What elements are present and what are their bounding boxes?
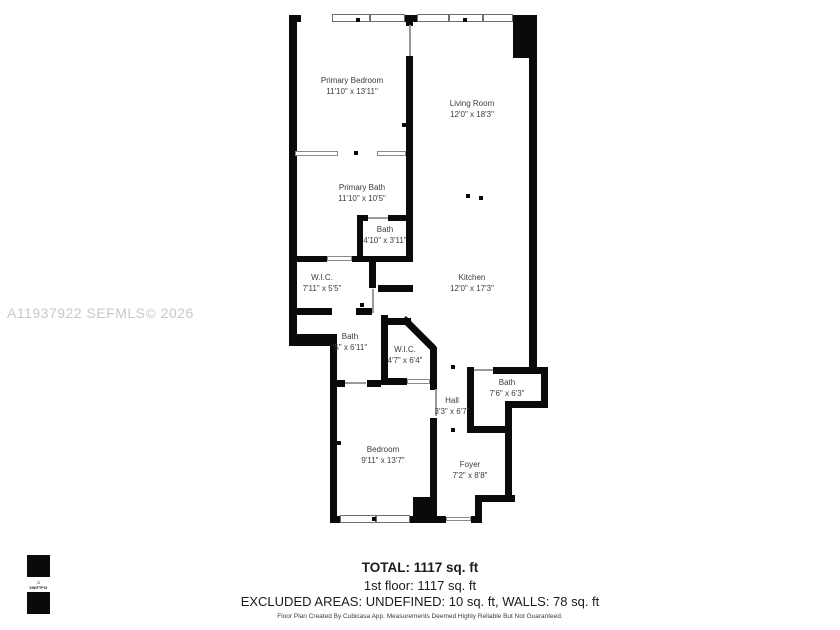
window bbox=[332, 14, 405, 22]
entry-door bbox=[446, 517, 471, 521]
summary-first-floor: 1st floor: 1117 sq. ft bbox=[0, 578, 840, 593]
brand-name: SWIFTPIX bbox=[29, 586, 47, 590]
sliding-door bbox=[377, 151, 406, 156]
wall bbox=[529, 15, 537, 374]
room-dims: 11'10" x 13'11" bbox=[292, 86, 412, 97]
wall-tick bbox=[479, 196, 483, 200]
window-mullion bbox=[482, 15, 484, 21]
room-dims: 4'10" x 3'11" bbox=[335, 235, 435, 246]
summary-excluded-areas: EXCLUDED AREAS: UNDEFINED: 10 sq. ft, WA… bbox=[0, 594, 840, 609]
summary-disclaimer: Floor Plan Created By Cubicasa App. Meas… bbox=[0, 613, 840, 620]
wall bbox=[356, 308, 372, 315]
brand-logo-band: ⌂ SWIFTPIX bbox=[27, 577, 50, 592]
sliding-door bbox=[327, 256, 352, 261]
room-label-hall: Hall 3'3" x 6'7" bbox=[407, 395, 497, 417]
room-dims: 7'2" x 8'8" bbox=[420, 470, 520, 481]
summary-total: TOTAL: 1117 sq. ft bbox=[0, 560, 840, 575]
room-dims: 4'7" x 6'4" bbox=[360, 355, 450, 366]
room-name: Kitchen bbox=[412, 272, 532, 283]
room-name: Bath bbox=[335, 224, 435, 235]
wall-tick bbox=[356, 18, 360, 22]
room-label-kitchen: Kitchen 12'0" x 17'3" bbox=[412, 272, 532, 294]
wall bbox=[330, 334, 337, 523]
room-name: W.I.C. bbox=[360, 344, 450, 355]
room-dims: 3'3" x 6'7" bbox=[407, 406, 497, 417]
room-dims: 12'0" x 17'3" bbox=[412, 283, 532, 294]
room-label-bath-small: Bath 4'10" x 3'11" bbox=[335, 224, 435, 246]
door-panel bbox=[368, 217, 388, 219]
wall-tick bbox=[354, 151, 358, 155]
wall bbox=[493, 367, 541, 374]
door-panel bbox=[345, 382, 366, 384]
wall bbox=[289, 308, 332, 315]
room-dims: 11'10" x 10'5" bbox=[302, 193, 422, 204]
sliding-door bbox=[407, 379, 430, 384]
room-dims: 7'11" x 5'5" bbox=[272, 283, 372, 294]
room-name: Bath bbox=[462, 377, 552, 388]
room-label-primary-bath: Primary Bath 11'10" x 10'5" bbox=[302, 182, 422, 204]
room-name: Primary Bedroom bbox=[292, 75, 412, 86]
door-panel bbox=[474, 369, 493, 371]
wall-tick bbox=[451, 365, 455, 369]
room-name: Primary Bath bbox=[302, 182, 422, 193]
wall bbox=[378, 285, 413, 292]
wall bbox=[505, 401, 512, 502]
wall-tick bbox=[463, 18, 467, 22]
wall bbox=[467, 426, 512, 433]
room-label-wic-large: W.I.C. 7'11" x 5'5" bbox=[272, 272, 372, 294]
wall bbox=[388, 215, 413, 221]
wall bbox=[289, 256, 327, 262]
room-label-foyer: Foyer 7'2" x 8'8" bbox=[420, 459, 520, 481]
room-label-wic-small: W.I.C. 4'7" x 6'4" bbox=[360, 344, 450, 366]
wall bbox=[352, 256, 413, 262]
wall-tick bbox=[466, 194, 470, 198]
wall-tick bbox=[402, 123, 406, 127]
wall-column bbox=[413, 497, 437, 523]
room-name: Living Room bbox=[412, 98, 532, 109]
wall-tick bbox=[451, 428, 455, 432]
window-mullion bbox=[448, 15, 450, 21]
wall bbox=[289, 15, 297, 346]
wall bbox=[387, 378, 407, 385]
room-name: Foyer bbox=[420, 459, 520, 470]
wall bbox=[437, 516, 446, 523]
window-mullion bbox=[369, 15, 371, 21]
door-panel bbox=[409, 25, 411, 56]
room-label-living-room: Living Room 12'0" x 18'3" bbox=[412, 98, 532, 120]
wall bbox=[289, 15, 301, 22]
wall bbox=[367, 380, 381, 387]
brand-logo: ⌂ SWIFTPIX bbox=[27, 555, 50, 614]
mls-watermark: A11937922 SEFMLS© 2026 bbox=[7, 305, 194, 321]
door-panel bbox=[372, 289, 374, 313]
room-label-primary-bedroom: Primary Bedroom 11'10" x 13'11" bbox=[292, 75, 412, 97]
floor-plan: A11937922 SEFMLS© 2026 bbox=[0, 0, 840, 630]
wall bbox=[330, 380, 345, 387]
room-name: Hall bbox=[407, 395, 497, 406]
sliding-door bbox=[295, 151, 338, 156]
wall-tick bbox=[372, 517, 376, 521]
room-name: Bath bbox=[305, 331, 395, 342]
room-dims: 12'0" x 18'3" bbox=[412, 109, 532, 120]
room-name: W.I.C. bbox=[272, 272, 372, 283]
room-name: Bedroom bbox=[323, 444, 443, 455]
wall-tick bbox=[360, 303, 364, 307]
